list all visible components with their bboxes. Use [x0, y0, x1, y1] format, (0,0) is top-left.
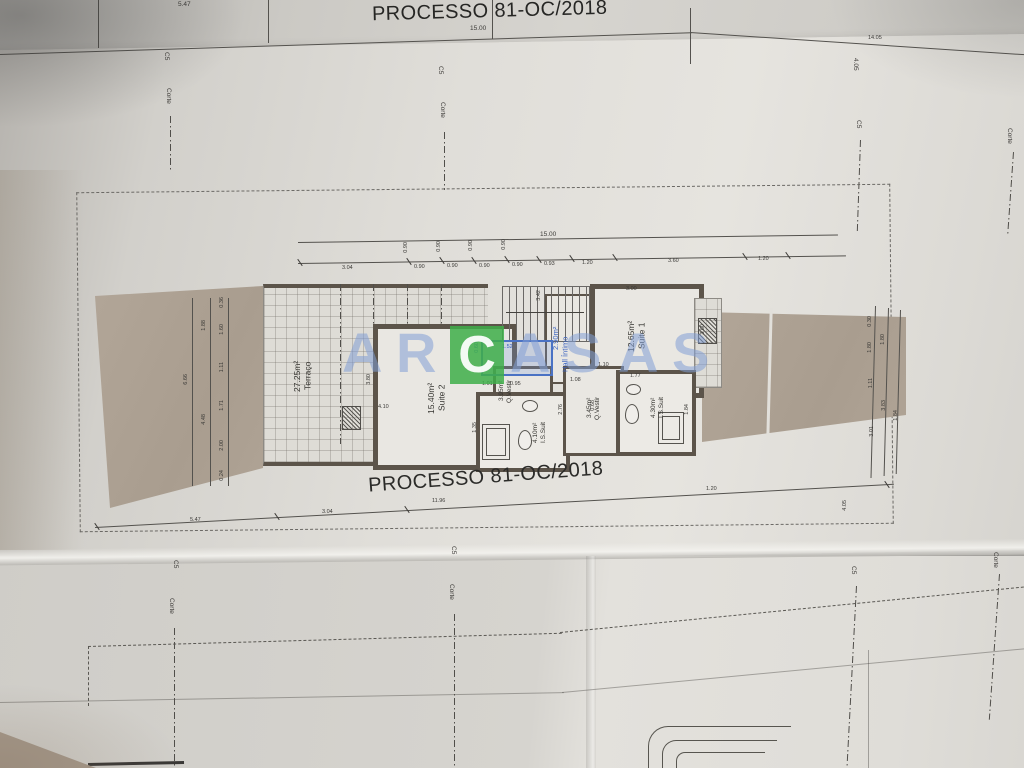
- watermark-letter: S: [672, 320, 709, 385]
- structural-grid-line: [340, 284, 341, 444]
- dimension-label: 1.20: [758, 256, 769, 262]
- dimension-label: 1.20: [582, 260, 593, 266]
- watermark-letter: S: [564, 320, 601, 385]
- boundary-dashed-line: [88, 646, 89, 706]
- dimension-label: 2.76: [558, 404, 564, 415]
- grid-line: [492, 0, 493, 39]
- dimension-line-left: [192, 298, 193, 486]
- section-label-c5: C5: [850, 566, 857, 574]
- dimension-label: 3.01: [869, 426, 875, 437]
- dimension-label: 5.47: [190, 517, 201, 523]
- dimension-label: 15.00: [470, 25, 486, 32]
- dimension-line-left: [228, 298, 229, 486]
- room-label-terraco: Terraço27.25m²: [292, 330, 313, 422]
- watermark-letter: A: [618, 320, 658, 385]
- section-label-corte: Corte: [1006, 128, 1013, 144]
- dimension-label: 3.60: [668, 258, 679, 264]
- dimension-label: 0.90: [512, 262, 523, 268]
- toilet-icon: [625, 404, 639, 424]
- dimension-label: 0.24: [219, 470, 225, 481]
- drain-grate-symbol: [342, 406, 361, 430]
- dimension-label: 4.48: [201, 414, 207, 425]
- dimension-label: 0.90: [436, 241, 442, 252]
- dimension-label: 4.05: [842, 500, 848, 511]
- section-cut-line: [454, 614, 455, 768]
- dimension-label: 0.90: [479, 263, 490, 269]
- section-label-corte: Corte: [439, 102, 446, 118]
- dimension-label: 3.04: [322, 509, 333, 515]
- dimension-label: 0.68: [590, 400, 596, 411]
- dimension-label: 1.84: [684, 404, 690, 415]
- toilet-icon: [518, 430, 532, 450]
- watermark-letter: R: [396, 320, 436, 385]
- dimension-label: 5.47: [178, 1, 191, 8]
- section-label-corte: Corte: [165, 88, 172, 104]
- dimension-label: 1.84: [893, 410, 899, 421]
- dimension-label: 0.90: [501, 239, 507, 250]
- section-label-c5: C5: [855, 120, 862, 128]
- dimension-label: 1.11: [219, 362, 225, 372]
- watermark-c-box: C: [450, 326, 504, 384]
- dimension-label: 0.90: [414, 264, 425, 270]
- section-cut-line: [170, 116, 171, 170]
- section-label-corte: Corte: [168, 598, 175, 614]
- sink-icon: [626, 384, 641, 395]
- photo-of-floor-plan-document: PROCESSO 81-OC/2018 5.47 15.00 14.05 C5 …: [0, 0, 1024, 768]
- room-label-issuit2: I.S.Suit4.10m²: [532, 408, 548, 458]
- dimension-label: 0.36: [219, 297, 225, 308]
- dimension-label: 3.00: [626, 286, 637, 292]
- dimension-label: 4.10: [378, 404, 389, 410]
- dimension-label: 1.35: [472, 422, 478, 433]
- dimension-label: 2.00: [219, 440, 225, 451]
- dimension-label: 1.11: [868, 378, 874, 388]
- dimension-label: 3.83: [881, 400, 887, 411]
- dimension-label: 0.93: [544, 261, 555, 267]
- dimension-label: 14.05: [868, 35, 882, 41]
- shower-icon: [482, 424, 510, 460]
- watermark-letter: A: [342, 320, 382, 385]
- dimension-label: 11.96: [432, 498, 445, 504]
- dimension-label: 1.80: [867, 342, 873, 353]
- room-label-issuit1: I.S.Suit4.30m²: [650, 378, 666, 438]
- dimension-label: 0.90: [447, 263, 458, 269]
- dimension-label: 0.90: [403, 242, 409, 253]
- section-label-corte: Corte: [448, 584, 455, 600]
- grid-line: [868, 650, 869, 768]
- section-label-c5: C5: [163, 52, 170, 60]
- dimension-label: 15.00: [540, 231, 556, 238]
- dimension-label: 3.42: [536, 290, 542, 301]
- dimension-line-left: [210, 298, 211, 486]
- lower-plan-corner: [676, 752, 765, 768]
- section-label-c5: C5: [437, 66, 444, 74]
- section-label-c5: C5: [450, 546, 457, 554]
- grid-line: [268, 0, 269, 43]
- stairs-walk-line: [506, 312, 584, 313]
- grid-line: [690, 8, 691, 64]
- section-label-c5: C5: [172, 560, 179, 568]
- dimension-label: 1.71: [219, 400, 225, 411]
- dimension-label: 1.20: [706, 486, 717, 492]
- dimension-label: 0.30: [867, 316, 873, 327]
- dimension-label: 4.05: [852, 58, 859, 71]
- dimension-label: 6.66: [183, 374, 189, 385]
- dimension-label: 0.90: [468, 240, 474, 251]
- watermark-letter: A: [510, 320, 550, 385]
- paper-crease: [586, 556, 596, 768]
- grid-line: [98, 0, 99, 48]
- dimension-label: 1.80: [880, 334, 886, 345]
- dimension-label: 1.60: [219, 324, 225, 335]
- floor-plan: Terraço27.25m² Suite 215.40m² Hall Íntim…: [70, 178, 920, 548]
- dimension-label: 3.04: [342, 265, 353, 271]
- dimension-label: 1.88: [201, 320, 207, 331]
- section-label-corte: Corte: [992, 552, 999, 568]
